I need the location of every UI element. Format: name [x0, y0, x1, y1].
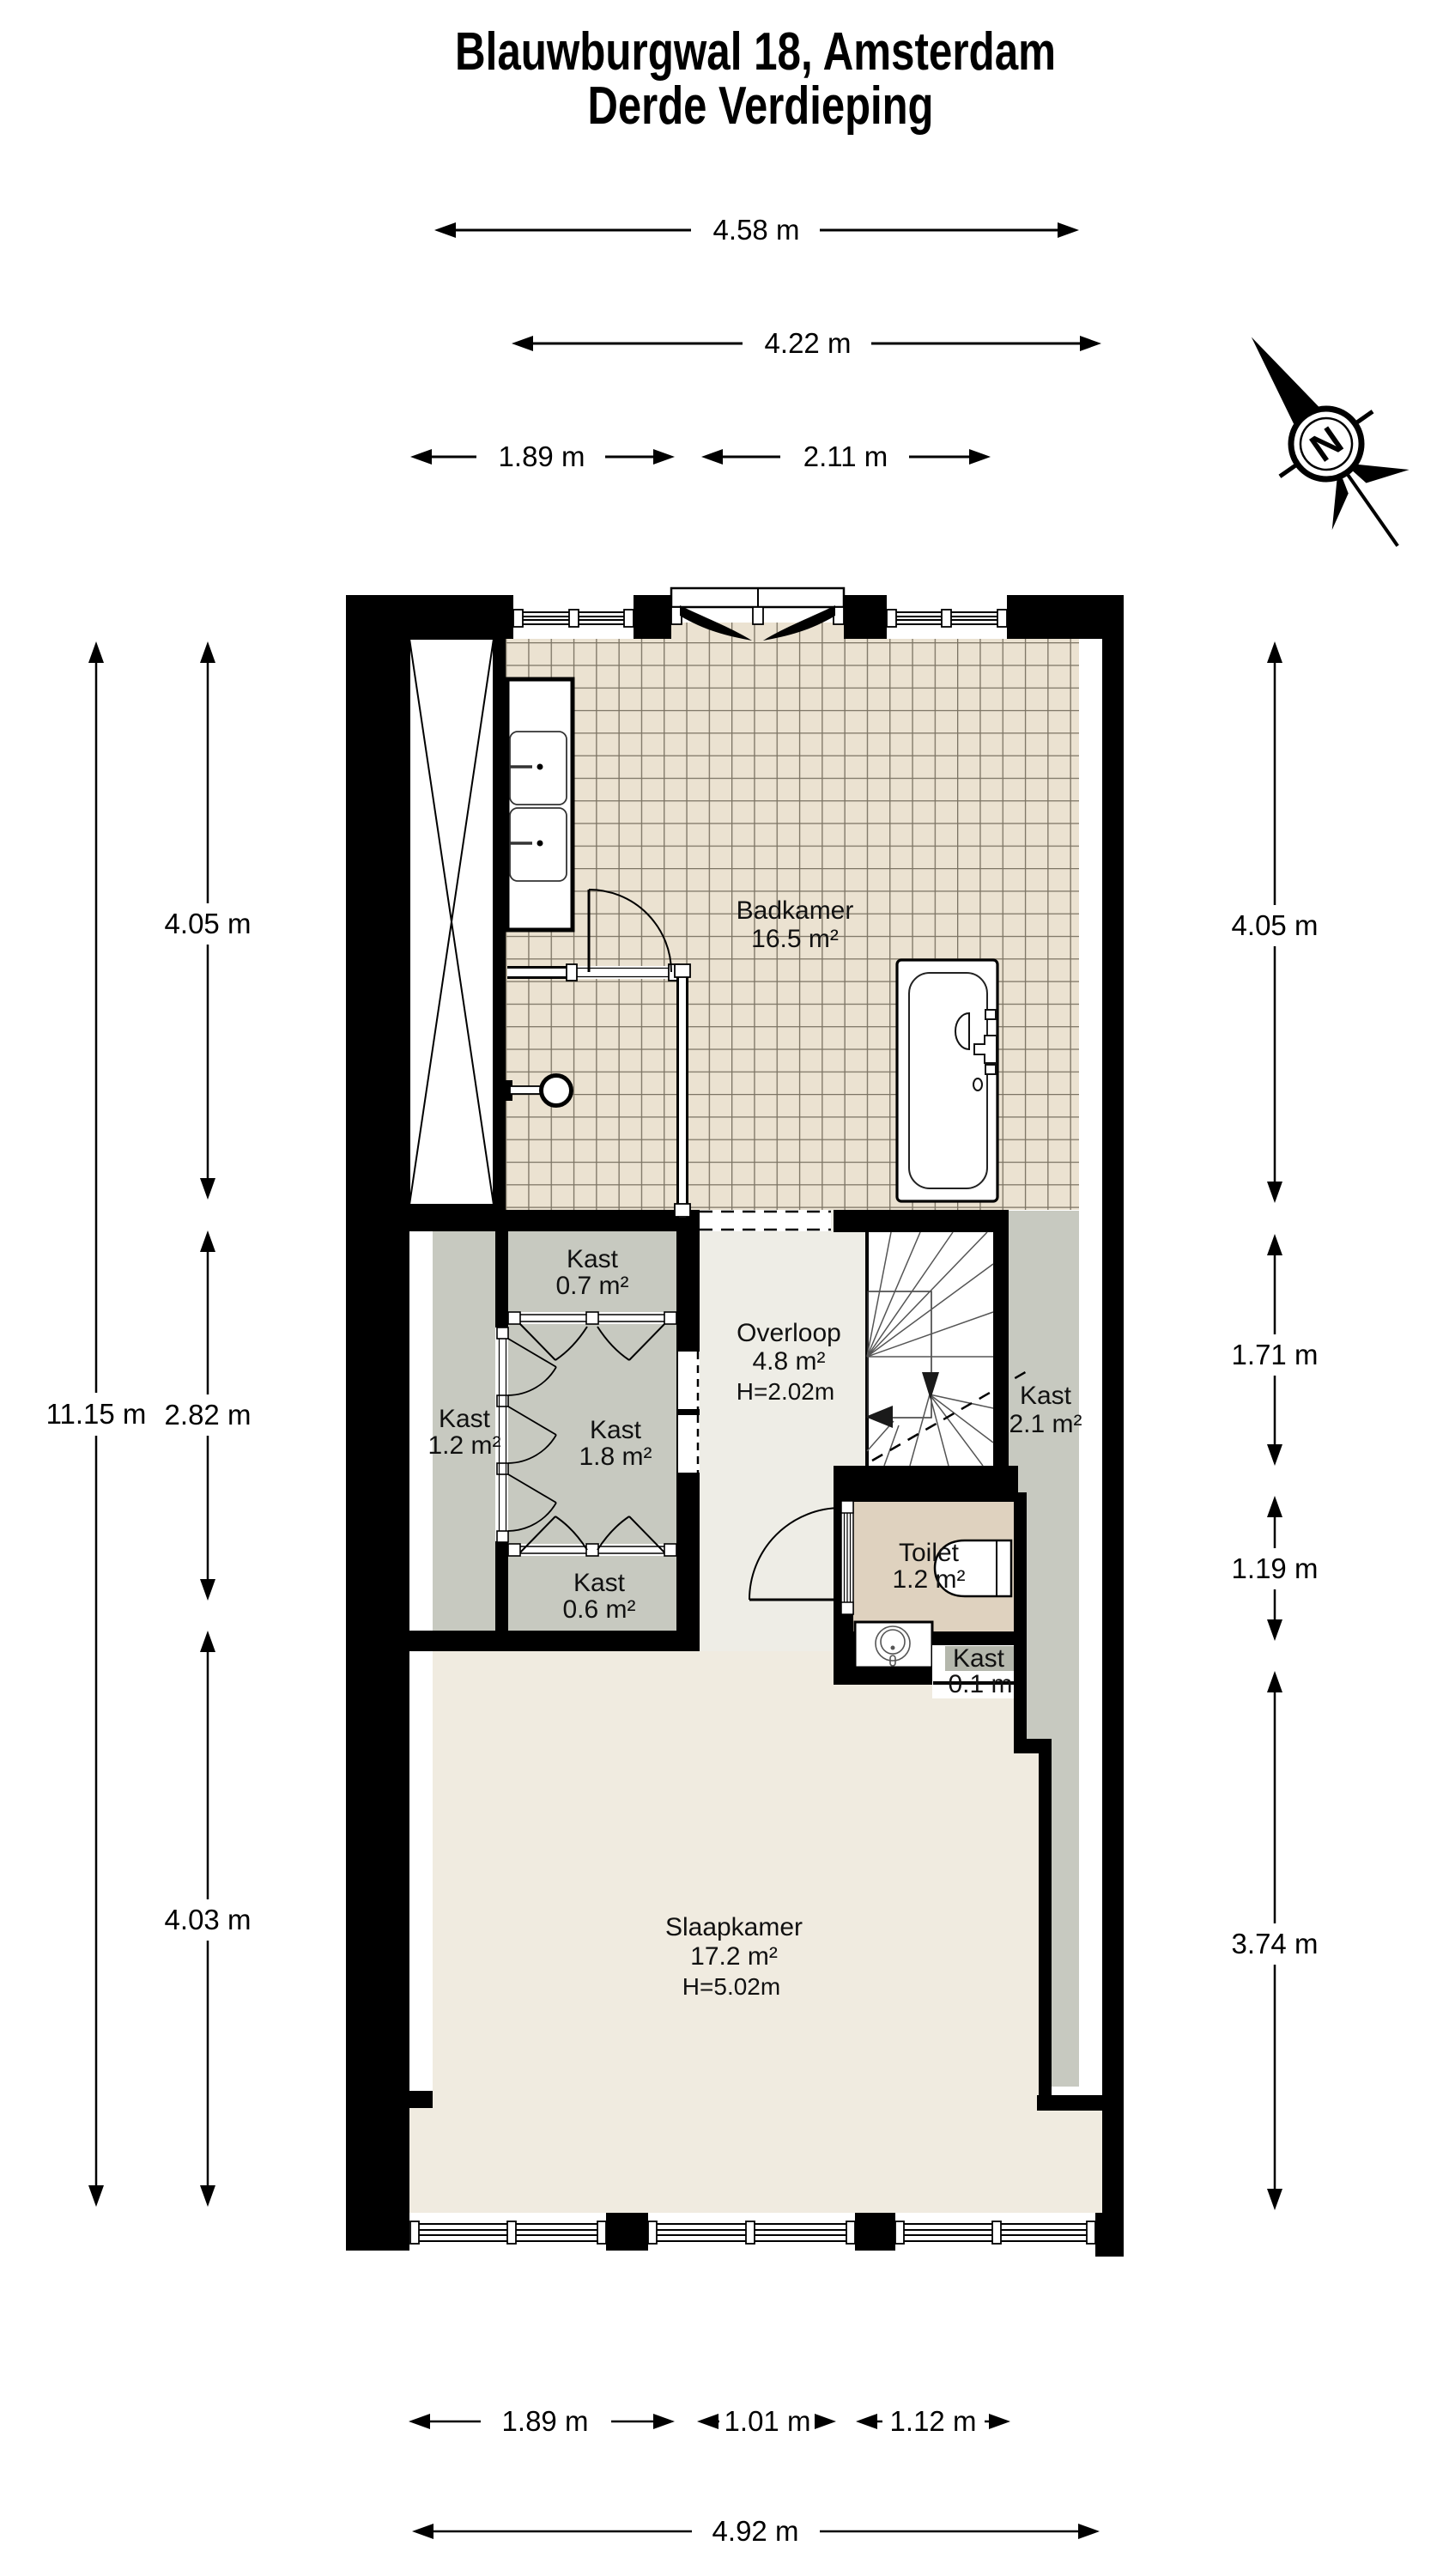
- svg-text:2.11 m: 2.11 m: [803, 440, 888, 472]
- svg-text:4.03 m: 4.03 m: [165, 1904, 252, 1935]
- svg-text:Derde Verdieping: Derde Verdieping: [588, 76, 934, 136]
- svg-text:1.89 m: 1.89 m: [499, 440, 585, 472]
- svg-text:Blauwburgwal 18, Amsterdam: Blauwburgwal 18, Amsterdam: [455, 22, 1056, 82]
- svg-text:1.01 m: 1.01 m: [724, 2405, 811, 2437]
- svg-text:4.22 m: 4.22 m: [765, 327, 852, 359]
- svg-text:16.5 m²: 16.5 m²: [751, 925, 839, 953]
- svg-text:H=5.02m: H=5.02m: [682, 1973, 780, 2000]
- svg-text:1.2 m²: 1.2 m²: [892, 1565, 965, 1594]
- svg-text:Kast: Kast: [1020, 1382, 1072, 1410]
- svg-text:1.89 m: 1.89 m: [502, 2405, 589, 2437]
- svg-text:Toilet: Toilet: [899, 1539, 960, 1567]
- svg-text:17.2 m²: 17.2 m²: [690, 1942, 778, 1971]
- svg-text:4.05 m: 4.05 m: [1232, 909, 1319, 941]
- svg-text:1.12 m: 1.12 m: [890, 2405, 977, 2437]
- svg-text:Kast: Kast: [953, 1644, 1005, 1673]
- svg-text:Slaapkamer: Slaapkamer: [665, 1913, 803, 1941]
- svg-text:Badkamer: Badkamer: [737, 896, 854, 925]
- svg-text:H=2.02m: H=2.02m: [737, 1378, 834, 1405]
- svg-text:1.8 m²: 1.8 m²: [579, 1443, 652, 1471]
- svg-text:0.7 m²: 0.7 m²: [555, 1272, 628, 1300]
- svg-text:2.1 m²: 2.1 m²: [1009, 1410, 1082, 1438]
- svg-text:Kast: Kast: [573, 1569, 626, 1597]
- svg-text:4.58 m: 4.58 m: [713, 214, 800, 246]
- svg-text:2.82 m: 2.82 m: [165, 1399, 252, 1431]
- svg-text:0.6 m²: 0.6 m²: [562, 1595, 635, 1624]
- svg-text:Kast: Kast: [439, 1405, 491, 1433]
- svg-text:4.8 m²: 4.8 m²: [752, 1347, 825, 1376]
- svg-text:Kast: Kast: [590, 1416, 642, 1444]
- svg-text:1.19 m: 1.19 m: [1232, 1552, 1319, 1584]
- svg-text:1.2 m²: 1.2 m²: [427, 1431, 500, 1460]
- svg-text:Kast: Kast: [567, 1245, 619, 1273]
- svg-text:0.1 m: 0.1 m: [948, 1670, 1012, 1698]
- svg-text:1.71 m: 1.71 m: [1232, 1339, 1319, 1370]
- svg-text:Overloop: Overloop: [737, 1319, 841, 1347]
- svg-text:11.15 m: 11.15 m: [46, 1398, 147, 1430]
- svg-text:4.92 m: 4.92 m: [712, 2515, 799, 2547]
- svg-text:3.74 m: 3.74 m: [1232, 1928, 1319, 1959]
- svg-text:4.05 m: 4.05 m: [165, 908, 252, 939]
